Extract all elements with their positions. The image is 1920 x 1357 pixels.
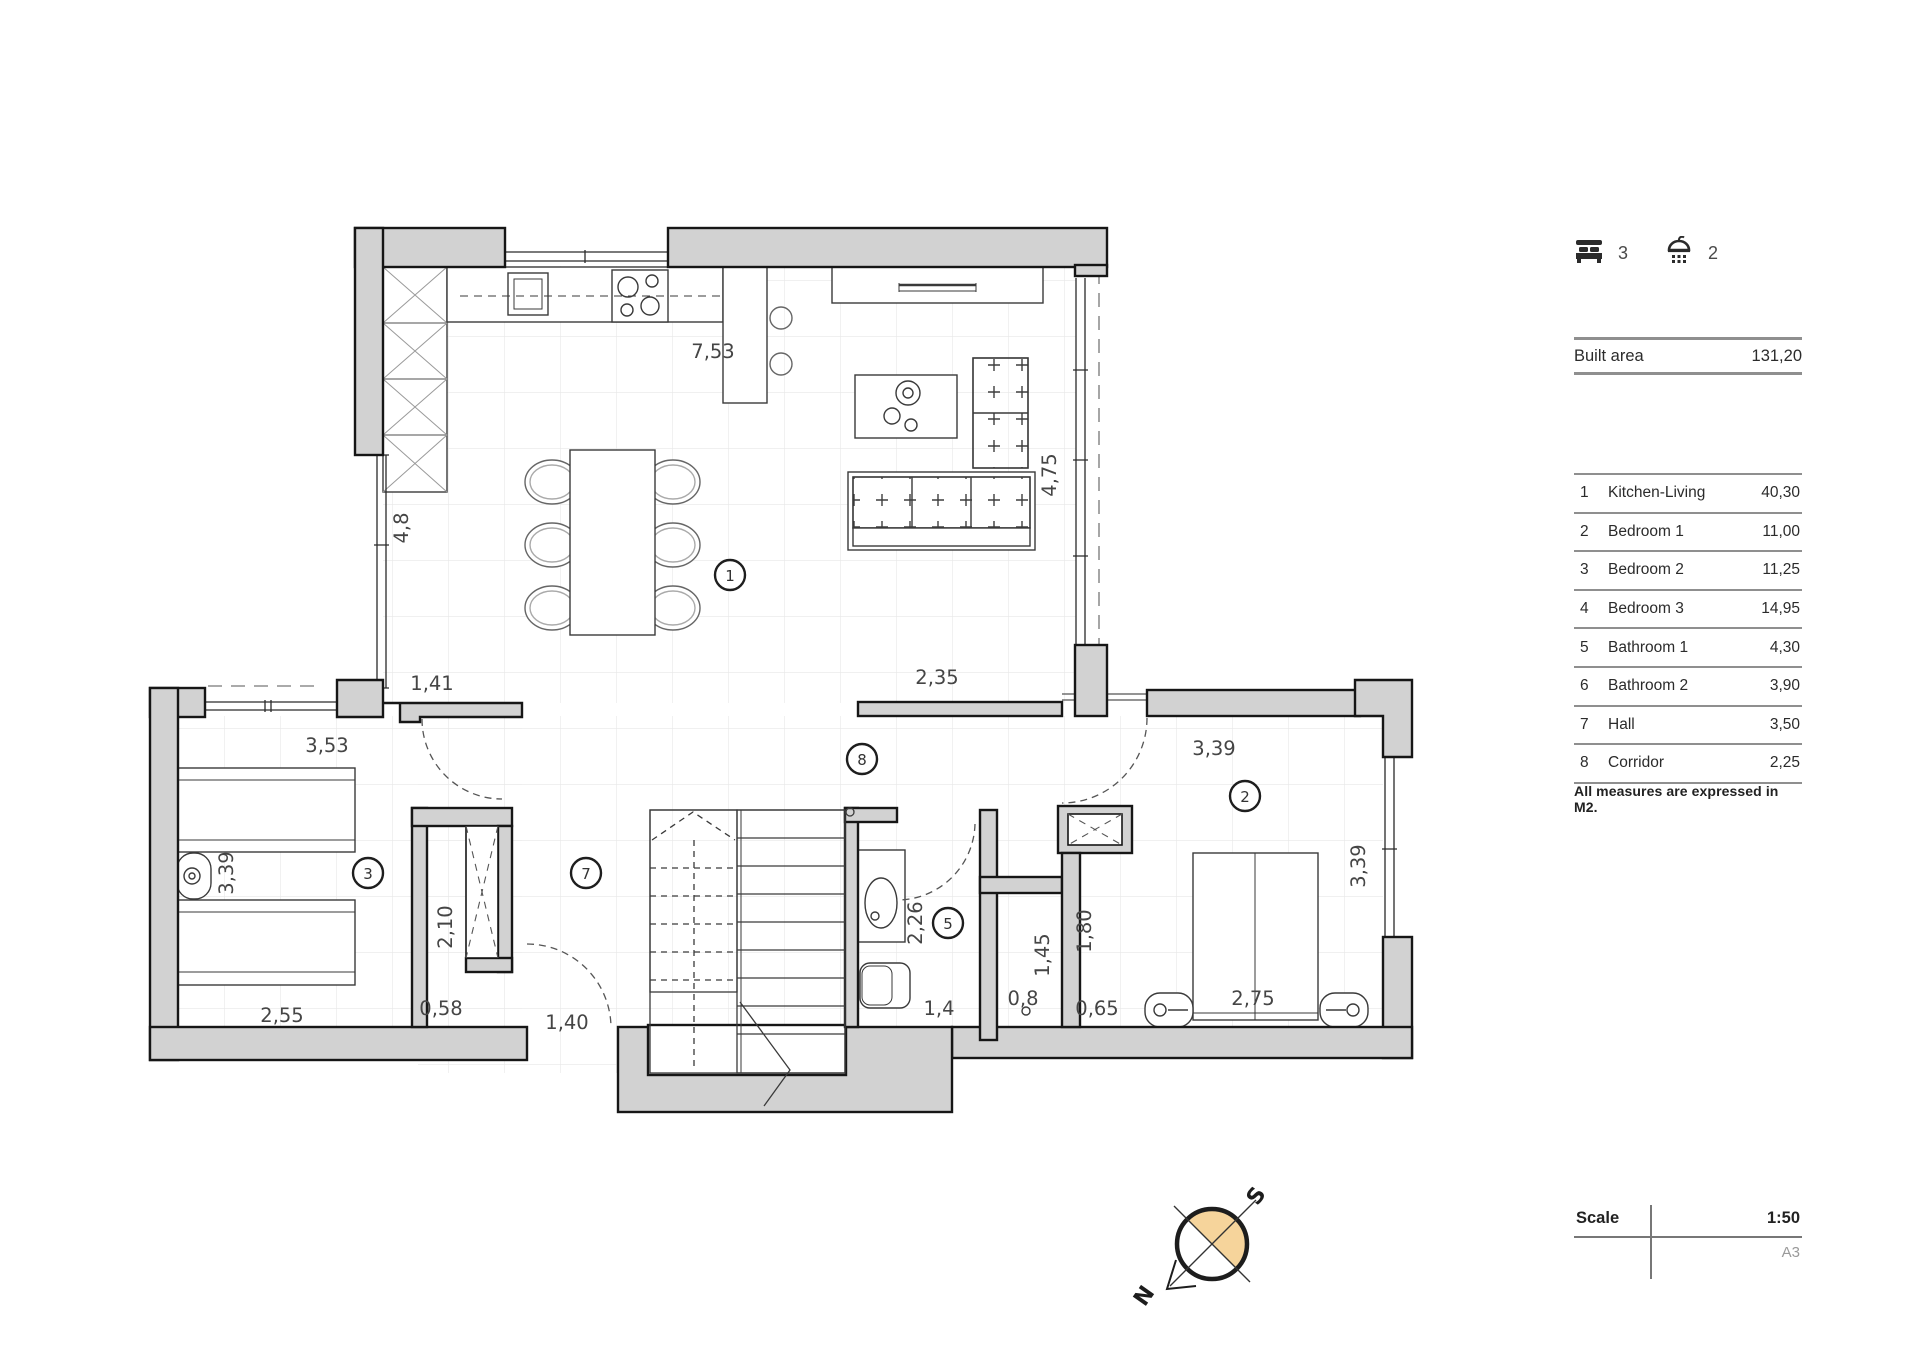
shower-icon [1664, 236, 1694, 271]
table-row: 5 Bathroom 1 4,30 [1574, 629, 1802, 668]
dimension-label: 2,26 [904, 901, 927, 944]
room-num: 3 [1574, 561, 1608, 579]
compass-rose: S N [1129, 1183, 1271, 1311]
room-num: 2 [1574, 523, 1608, 541]
dimension-label: 3,53 [305, 734, 348, 757]
dimension-label: 1,45 [1031, 933, 1054, 976]
room-name: Bathroom 2 [1608, 677, 1770, 695]
room-name: Kitchen-Living [1608, 484, 1761, 502]
built-area-value: 131,20 [1752, 347, 1802, 366]
measures-note: All measures are expressed in M2. [1574, 783, 1802, 815]
room-marker-bedroom2: 3 [353, 858, 383, 888]
table-row: 8 Corridor 2,25 [1574, 745, 1802, 784]
bathroom-count: 2 [1708, 243, 1718, 264]
dimension-label: 3,39 [215, 851, 238, 894]
dimension-label: 0,65 [1075, 997, 1118, 1020]
room-area: 40,30 [1761, 484, 1802, 502]
bed-icon [1574, 238, 1604, 269]
built-area-row: Built area 131,20 [1574, 337, 1802, 375]
toilet [860, 963, 910, 1008]
dimension-label: 1,40 [545, 1011, 588, 1034]
room-marker-hall: 7 [571, 858, 601, 888]
dining-table [570, 450, 655, 635]
room-area: 3,50 [1770, 716, 1802, 734]
dimension-label: 2,55 [260, 1004, 303, 1027]
room-name: Bedroom 3 [1608, 600, 1761, 618]
table-row: 1 Kitchen-Living 40,30 [1574, 473, 1802, 514]
room-area: 2,25 [1770, 754, 1802, 772]
room-name: Hall [1608, 716, 1770, 734]
dimension-label: 2,35 [915, 666, 958, 689]
svg-text:1: 1 [725, 567, 735, 585]
table-row: 2 Bedroom 1 11,00 [1574, 514, 1802, 553]
bathroom1-fixtures [858, 850, 910, 1008]
built-area-label: Built area [1574, 347, 1644, 366]
nightstand [177, 853, 211, 899]
tv-sideboard [832, 266, 1043, 303]
room-num: 4 [1574, 600, 1608, 618]
dimension-label: 2,10 [434, 905, 457, 948]
svg-text:8: 8 [857, 751, 867, 769]
scale-block: Scale 1:50 A3 [1574, 1207, 1802, 1261]
wardrobe [383, 267, 447, 492]
kitchen-counter [447, 267, 723, 322]
paper-size: A3 [1574, 1238, 1802, 1261]
unit-stats: 3 2 [1574, 236, 1802, 271]
room-area: 11,00 [1762, 523, 1802, 541]
coffee-table [855, 375, 957, 438]
room-marker-bathroom1: 5 [933, 908, 963, 938]
room-table: 1 Kitchen-Living 40,30 2 Bedroom 1 11,00… [1574, 473, 1802, 784]
room-marker-corridor: 8 [847, 744, 877, 774]
table-row: 4 Bedroom 3 14,95 [1574, 591, 1802, 630]
svg-text:7: 7 [581, 865, 591, 883]
scale-divider [1650, 1205, 1652, 1279]
dimension-label: 3,39 [1347, 844, 1370, 887]
svg-text:3: 3 [363, 865, 373, 883]
room-num: 7 [1574, 716, 1608, 734]
scale-label: Scale [1576, 1209, 1619, 1228]
dimension-label: 4,75 [1038, 453, 1061, 496]
room-area: 14,95 [1761, 600, 1802, 618]
table-row: 7 Hall 3,50 [1574, 707, 1802, 746]
dimension-label: 0,8 [1007, 987, 1038, 1010]
room-num: 8 [1574, 754, 1608, 772]
dimension-label: 3,39 [1192, 737, 1235, 760]
dimension-label: 0,58 [419, 997, 462, 1020]
bedroom-count: 3 [1618, 243, 1628, 264]
dimension-label: 1,4 [923, 997, 954, 1020]
room-area: 11,25 [1762, 561, 1802, 579]
dimension-label: 7,53 [691, 340, 734, 363]
dimension-label: 1,41 [410, 672, 453, 695]
sofa [848, 472, 1035, 550]
room-num: 1 [1574, 484, 1608, 502]
scale-value: 1:50 [1767, 1209, 1800, 1228]
room-name: Bedroom 2 [1608, 561, 1762, 579]
dimension-label: 4,8 [390, 512, 413, 543]
svg-text:5: 5 [943, 915, 953, 933]
room-num: 5 [1574, 639, 1608, 657]
room-num: 6 [1574, 677, 1608, 695]
dimension-label: 1,80 [1073, 909, 1096, 952]
room-name: Corridor [1608, 754, 1770, 772]
room-area: 4,30 [1770, 639, 1802, 657]
compass-south-label: S [1242, 1183, 1272, 1210]
stairs [650, 808, 854, 1106]
svg-text:2: 2 [1240, 788, 1250, 806]
compass-north-label: N [1129, 1282, 1160, 1311]
room-name: Bedroom 1 [1608, 523, 1762, 541]
room-area: 3,90 [1770, 677, 1802, 695]
room-name: Bathroom 1 [1608, 639, 1770, 657]
table-row: 6 Bathroom 2 3,90 [1574, 668, 1802, 707]
room-marker-kitchen-living: 1 [715, 560, 745, 590]
armchair [973, 358, 1028, 468]
dimension-label: 2,75 [1231, 987, 1274, 1010]
room-marker-bedroom1: 2 [1230, 781, 1260, 811]
table-row: 3 Bedroom 2 11,25 [1574, 552, 1802, 591]
